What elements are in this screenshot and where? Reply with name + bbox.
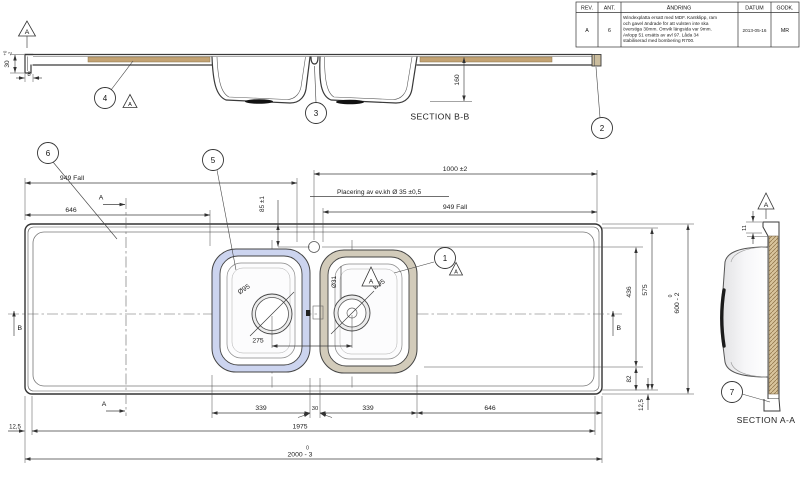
rev-cell-datum: 2013-05-16: [743, 28, 767, 33]
balloon-4: 4 A: [95, 61, 138, 109]
svg-text:339: 339: [255, 405, 267, 412]
svg-text:0: 0: [306, 446, 309, 452]
svg-text:2000 - 3: 2000 - 3: [288, 452, 313, 459]
dim-upper-height: 436: [626, 248, 636, 367]
svg-text:949 Fall: 949 Fall: [60, 175, 85, 182]
rev-change-line-2: och gavel ändrade för att vulsten inte s…: [623, 21, 709, 26]
rev-change-line-3: överstiga 30mm. Omvik längsida var 9mm.: [623, 27, 712, 32]
dim-inner-length: 1975: [32, 424, 595, 432]
dim-bowl-right-width: 339: [320, 405, 417, 413]
section-aa-label: SECTION A-A: [737, 415, 796, 425]
dim-lip-width: 8: [16, 72, 42, 82]
dim-lower-height: 82: [626, 368, 636, 391]
bowl-profile: [722, 247, 769, 377]
mdf-strip-left: [88, 57, 210, 62]
cad-drawing: REV. ANT. ÄNDRING DATUM GODK. A 6 Windex…: [0, 0, 800, 490]
dim-bowl-depth: 160: [430, 58, 472, 102]
dim-right-span: 1000 ±2: [314, 166, 597, 174]
rev-header-ant: ANT.: [604, 6, 615, 12]
dim-left-drainboard: 646: [25, 207, 210, 215]
faucet-note: Placering av ev.kh Ø 35 ±0,5: [310, 189, 449, 197]
dim-160-value: 160: [454, 74, 461, 86]
front-edge-profile: [25, 55, 33, 74]
section-bb-label: SECTION B-B: [410, 112, 469, 122]
svg-text:12,5: 12,5: [639, 399, 645, 411]
bowl-right: Ø95 Ø31 A: [320, 250, 417, 373]
rev-header-andring: ÄNDRING: [667, 5, 691, 12]
dim-corner-offset-left: 12,5: [8, 425, 25, 432]
svg-text:949 Fall: 949 Fall: [443, 204, 468, 211]
rev-cell-ant: 6: [608, 28, 611, 34]
datum-flag-bb: A: [19, 21, 36, 48]
faucet-hole: [309, 242, 320, 253]
bowl-left-section: [212, 57, 310, 103]
svg-text:575: 575: [642, 284, 649, 296]
svg-text:Placering av ev.kh Ø 35 ±0,5: Placering av ev.kh Ø 35 ±0,5: [337, 189, 421, 196]
section-marker-a-bottom: A: [102, 401, 125, 411]
bowl-left: Ø95: [212, 249, 310, 372]
dim-overflow-dia: Ø31: [331, 276, 338, 288]
svg-text:11: 11: [742, 225, 748, 231]
svg-text:646: 646: [65, 207, 77, 214]
datum-a-label: A: [128, 102, 132, 108]
rev-change-line-5: stabiliserad med bombering R700.: [623, 38, 694, 43]
svg-text:339: 339: [362, 405, 374, 412]
rev-change-line-1: Windexplatta ersatt med MDF. Kantklipp, …: [623, 15, 717, 20]
balloon-2: 2: [592, 67, 613, 139]
balloon-7-number: 7: [730, 388, 735, 397]
drain-left-section: [245, 99, 273, 104]
section-marker-a-top: A: [99, 195, 125, 205]
dim-fall-left: 949 Fall: [25, 175, 297, 183]
dim-total-width: 600 - 2 0: [668, 225, 688, 394]
balloon-3-number: 3: [314, 109, 319, 118]
svg-text:646: 646: [484, 405, 496, 412]
svg-text:85 ±1: 85 ±1: [259, 196, 266, 212]
rev-cell-godk: MR: [781, 28, 789, 34]
rev-header-rev: REV.: [581, 6, 593, 12]
datum-a-label: A: [454, 269, 458, 275]
marker-a-label: A: [99, 195, 104, 202]
datum-flag-aa: A: [758, 193, 774, 219]
svg-text:0: 0: [668, 294, 674, 297]
marker-b-label: B: [617, 325, 622, 332]
svg-text:436: 436: [626, 286, 633, 298]
svg-text:82: 82: [626, 375, 633, 382]
balloon-5-number: 5: [211, 156, 216, 165]
mdf-hatch: [769, 236, 778, 394]
svg-text:275: 275: [252, 338, 264, 345]
dim-corner-offset-right: 12,5: [639, 378, 648, 411]
datum-a-label: A: [764, 202, 769, 209]
dim-fall-right: 949 Fall: [323, 204, 597, 212]
svg-text:1975: 1975: [292, 424, 307, 431]
drawing-canvas: REV. ANT. ÄNDRING DATUM GODK. A 6 Windex…: [0, 0, 800, 490]
dim-inner-width: 575: [642, 229, 652, 390]
balloon-7: 7: [722, 382, 771, 403]
dim-rim-height: 11: [742, 211, 762, 244]
marker-a-label: A: [102, 401, 107, 408]
divider-mark: [306, 310, 311, 316]
svg-text:30: 30: [312, 406, 318, 412]
dim-edge-height: 30 +0 -2: [3, 50, 25, 73]
rev-header-datum: DATUM: [745, 6, 763, 12]
balloon-4-number: 4: [103, 94, 108, 103]
section-aa-view: A 11 7 SECTION A-A: [722, 193, 796, 425]
rev-cell-rev: A: [585, 28, 589, 34]
section-marker-b-left: B: [14, 311, 23, 336]
drain-right-section: [336, 100, 364, 105]
plan-view: Ø95 Ø95 Ø31 A: [8, 143, 694, 464]
svg-text:1000 ±2: 1000 ±2: [443, 166, 468, 173]
marker-b-label: B: [18, 325, 23, 332]
dim-total-length: 2000 - 3 0: [25, 446, 602, 460]
datum-a-label: A: [25, 29, 30, 36]
balloon-6-number: 6: [46, 149, 51, 158]
dim-right-drainboard: 646: [417, 405, 602, 413]
section-bb-view: A 30 +0 -2 8 160: [3, 21, 613, 139]
dim-divider-width: 30: [298, 406, 332, 418]
balloon-2-number: 2: [600, 124, 605, 133]
svg-text:12,5: 12,5: [9, 425, 21, 431]
section-marker-b-right: B: [613, 311, 622, 336]
mdf-strip-right: [420, 57, 552, 62]
revision-table: REV. ANT. ÄNDRING DATUM GODK. A 6 Windex…: [576, 2, 799, 47]
dim-30-value: 30: [4, 60, 11, 68]
balloon-3: 3: [306, 66, 327, 124]
balloon-1-number: 1: [443, 254, 448, 263]
svg-text:600 - 2: 600 - 2: [674, 292, 681, 313]
gavel-end-cap: [592, 55, 601, 67]
rev-header-godk: GODK.: [776, 6, 793, 12]
dim-30-tol-lower: -2: [8, 51, 13, 55]
datum-a-label: A: [369, 279, 374, 286]
divider-section: [311, 57, 318, 64]
dim-bowl-left-width: 339: [212, 405, 310, 413]
rev-change-line-4: Avlopp 51 ersätts av avl 97. Låda 34: [623, 31, 699, 37]
